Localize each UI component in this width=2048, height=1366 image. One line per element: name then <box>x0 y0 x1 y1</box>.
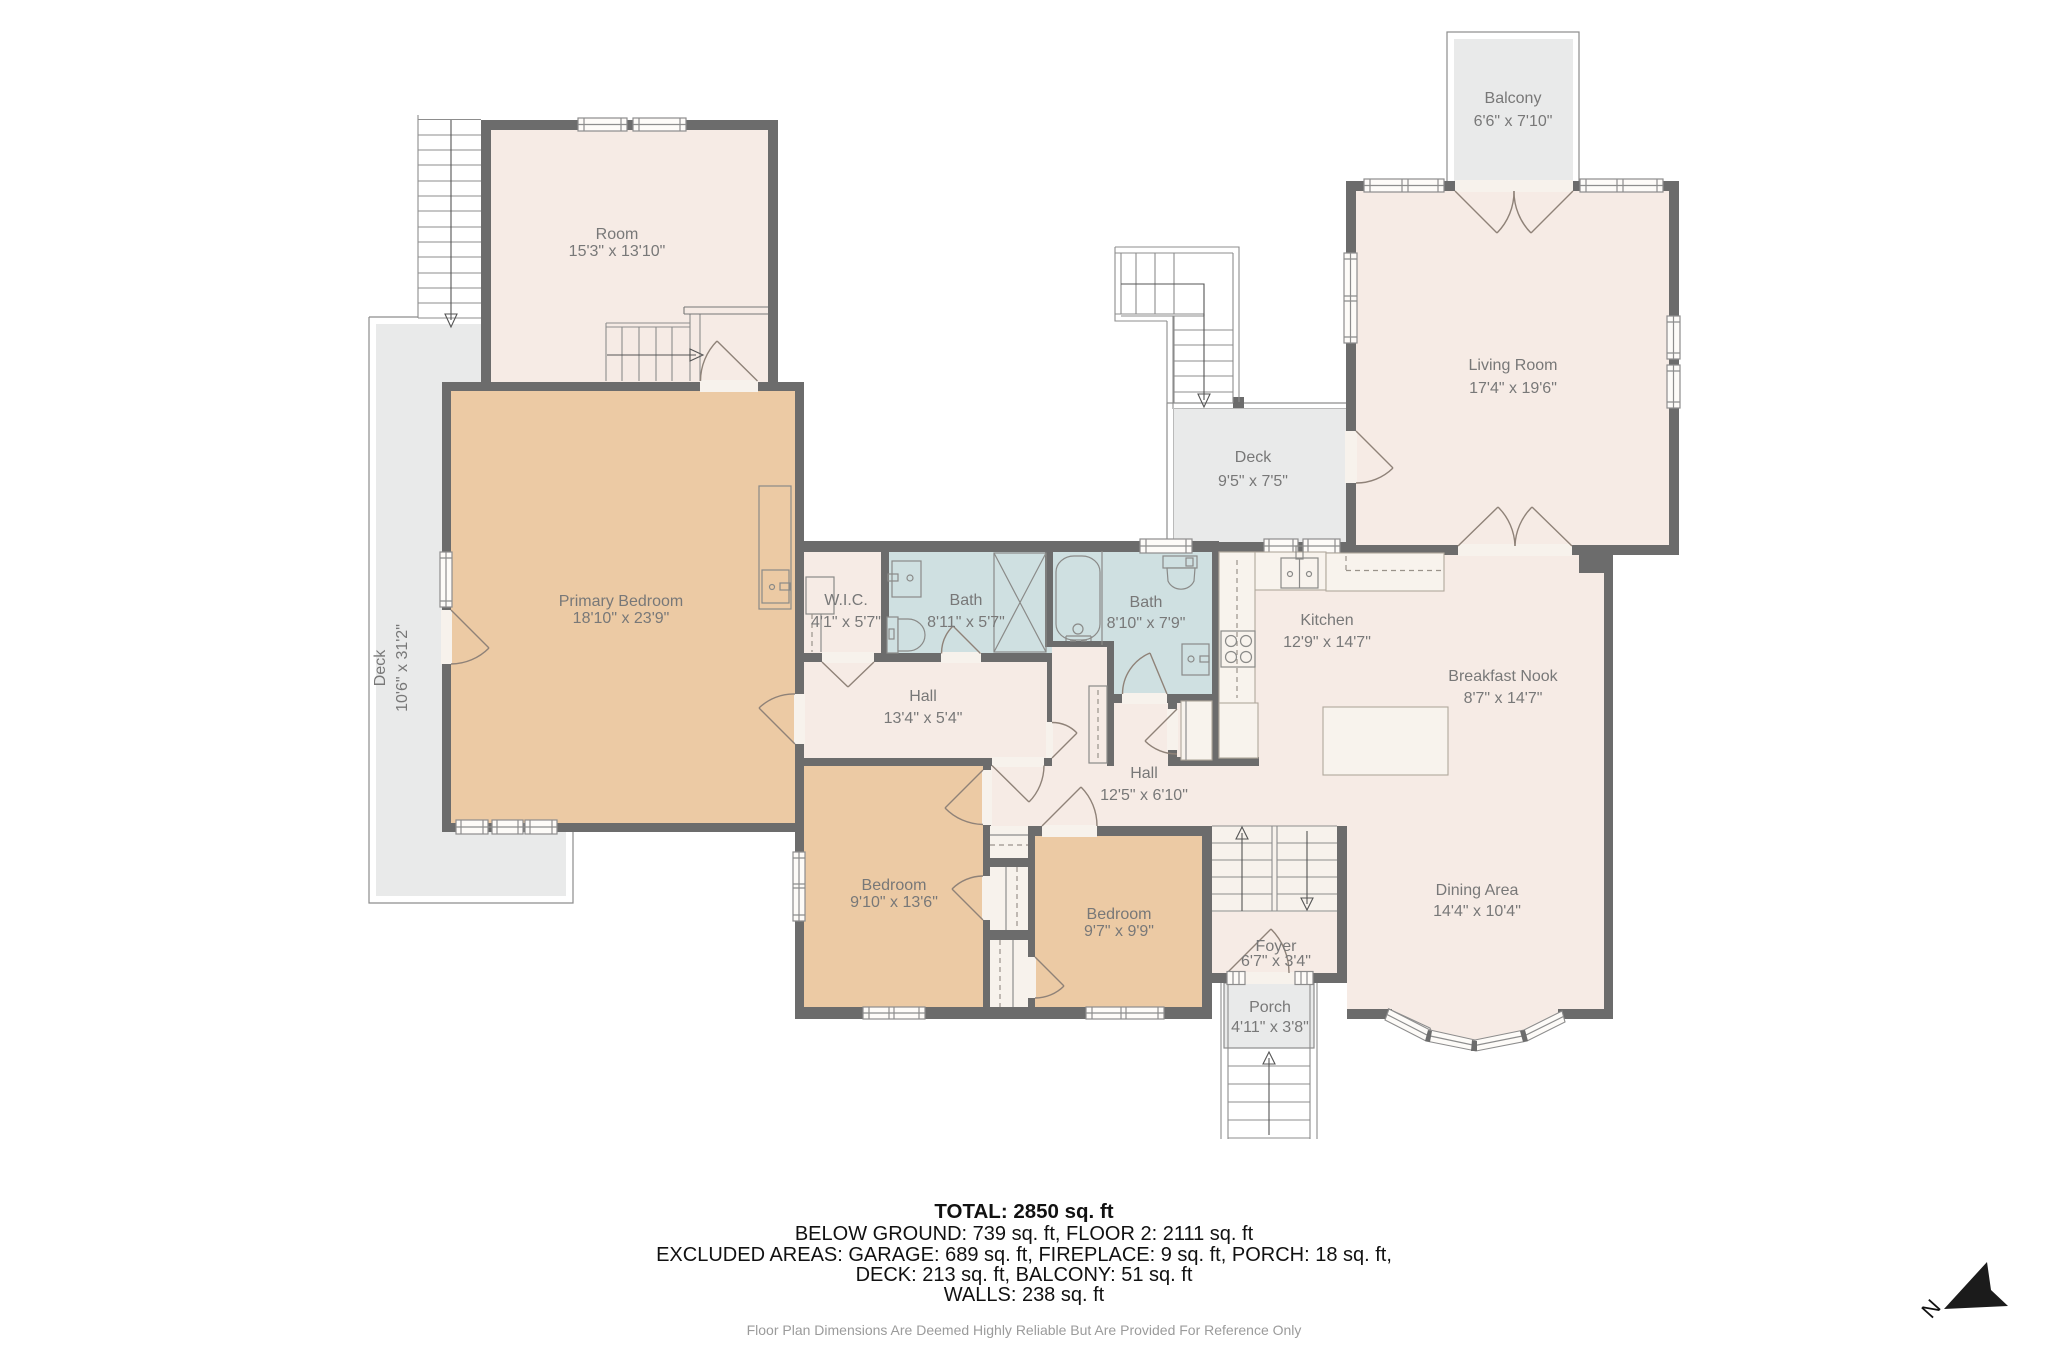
svg-text:Dining Area: Dining Area <box>1436 882 1519 899</box>
svg-text:12'9" x 14'7": 12'9" x 14'7" <box>1283 634 1371 651</box>
svg-text:Bath: Bath <box>950 592 983 609</box>
svg-text:9'10" x 13'6": 9'10" x 13'6" <box>850 894 938 911</box>
svg-text:Deck: Deck <box>1235 449 1272 466</box>
svg-text:15'3" x 13'10": 15'3" x 13'10" <box>569 243 666 260</box>
svg-text:Bath: Bath <box>1130 594 1163 611</box>
svg-text:Bedroom: Bedroom <box>1087 906 1152 923</box>
svg-text:Living Room: Living Room <box>1469 357 1558 374</box>
svg-text:Primary Bedroom: Primary Bedroom <box>559 593 683 610</box>
svg-text:TOTAL: 2850 sq. ft: TOTAL: 2850 sq. ft <box>934 1200 1113 1223</box>
svg-text:Balcony: Balcony <box>1485 90 1542 107</box>
svg-text:WALLS: 238 sq. ft: WALLS: 238 sq. ft <box>944 1284 1105 1306</box>
svg-text:4'11" x 3'8": 4'11" x 3'8" <box>1231 1019 1309 1036</box>
svg-text:10'6" x 31'2": 10'6" x 31'2" <box>394 624 411 712</box>
svg-text:Room: Room <box>596 226 639 243</box>
svg-text:Kitchen: Kitchen <box>1300 612 1353 629</box>
svg-text:12'5" x 6'10": 12'5" x 6'10" <box>1100 787 1188 804</box>
svg-text:EXCLUDED AREAS: GARAGE: 689 sq: EXCLUDED AREAS: GARAGE: 689 sq. ft, FIRE… <box>656 1244 1392 1266</box>
svg-text:Deck: Deck <box>372 649 389 686</box>
svg-text:6'6" x 7'10": 6'6" x 7'10" <box>1474 113 1553 130</box>
svg-text:14'4" x 10'4": 14'4" x 10'4" <box>1433 903 1521 920</box>
svg-text:DECK: 213 sq. ft, BALCONY: 51: DECK: 213 sq. ft, BALCONY: 51 sq. ft <box>856 1264 1193 1286</box>
svg-text:Bedroom: Bedroom <box>862 877 927 894</box>
svg-text:8'11" x 5'7": 8'11" x 5'7" <box>927 614 1005 631</box>
svg-text:8'10" x 7'9": 8'10" x 7'9" <box>1107 615 1186 632</box>
svg-text:9'5" x 7'5": 9'5" x 7'5" <box>1218 473 1288 490</box>
svg-text:9'7" x 9'9": 9'7" x 9'9" <box>1084 923 1154 940</box>
svg-text:18'10" x 23'9": 18'10" x 23'9" <box>573 610 670 627</box>
svg-text:Hall: Hall <box>1130 765 1158 782</box>
svg-text:BELOW GROUND: 739 sq. ft, FLOO: BELOW GROUND: 739 sq. ft, FLOOR 2: 2111 … <box>795 1223 1254 1245</box>
svg-text:Floor Plan Dimensions Are Deem: Floor Plan Dimensions Are Deemed Highly … <box>747 1322 1302 1338</box>
svg-text:Hall: Hall <box>909 688 937 705</box>
svg-text:8'7" x 14'7": 8'7" x 14'7" <box>1464 690 1543 707</box>
svg-text:4'1" x 5'7": 4'1" x 5'7" <box>811 614 881 631</box>
svg-text:13'4" x 5'4": 13'4" x 5'4" <box>884 710 963 727</box>
svg-text:Breakfast Nook: Breakfast Nook <box>1448 668 1558 685</box>
svg-text:W.I.C.: W.I.C. <box>824 592 868 609</box>
svg-text:17'4" x 19'6": 17'4" x 19'6" <box>1469 380 1557 397</box>
svg-text:6'7" x 3'4": 6'7" x 3'4" <box>1241 953 1311 970</box>
svg-text:Porch: Porch <box>1249 999 1291 1016</box>
